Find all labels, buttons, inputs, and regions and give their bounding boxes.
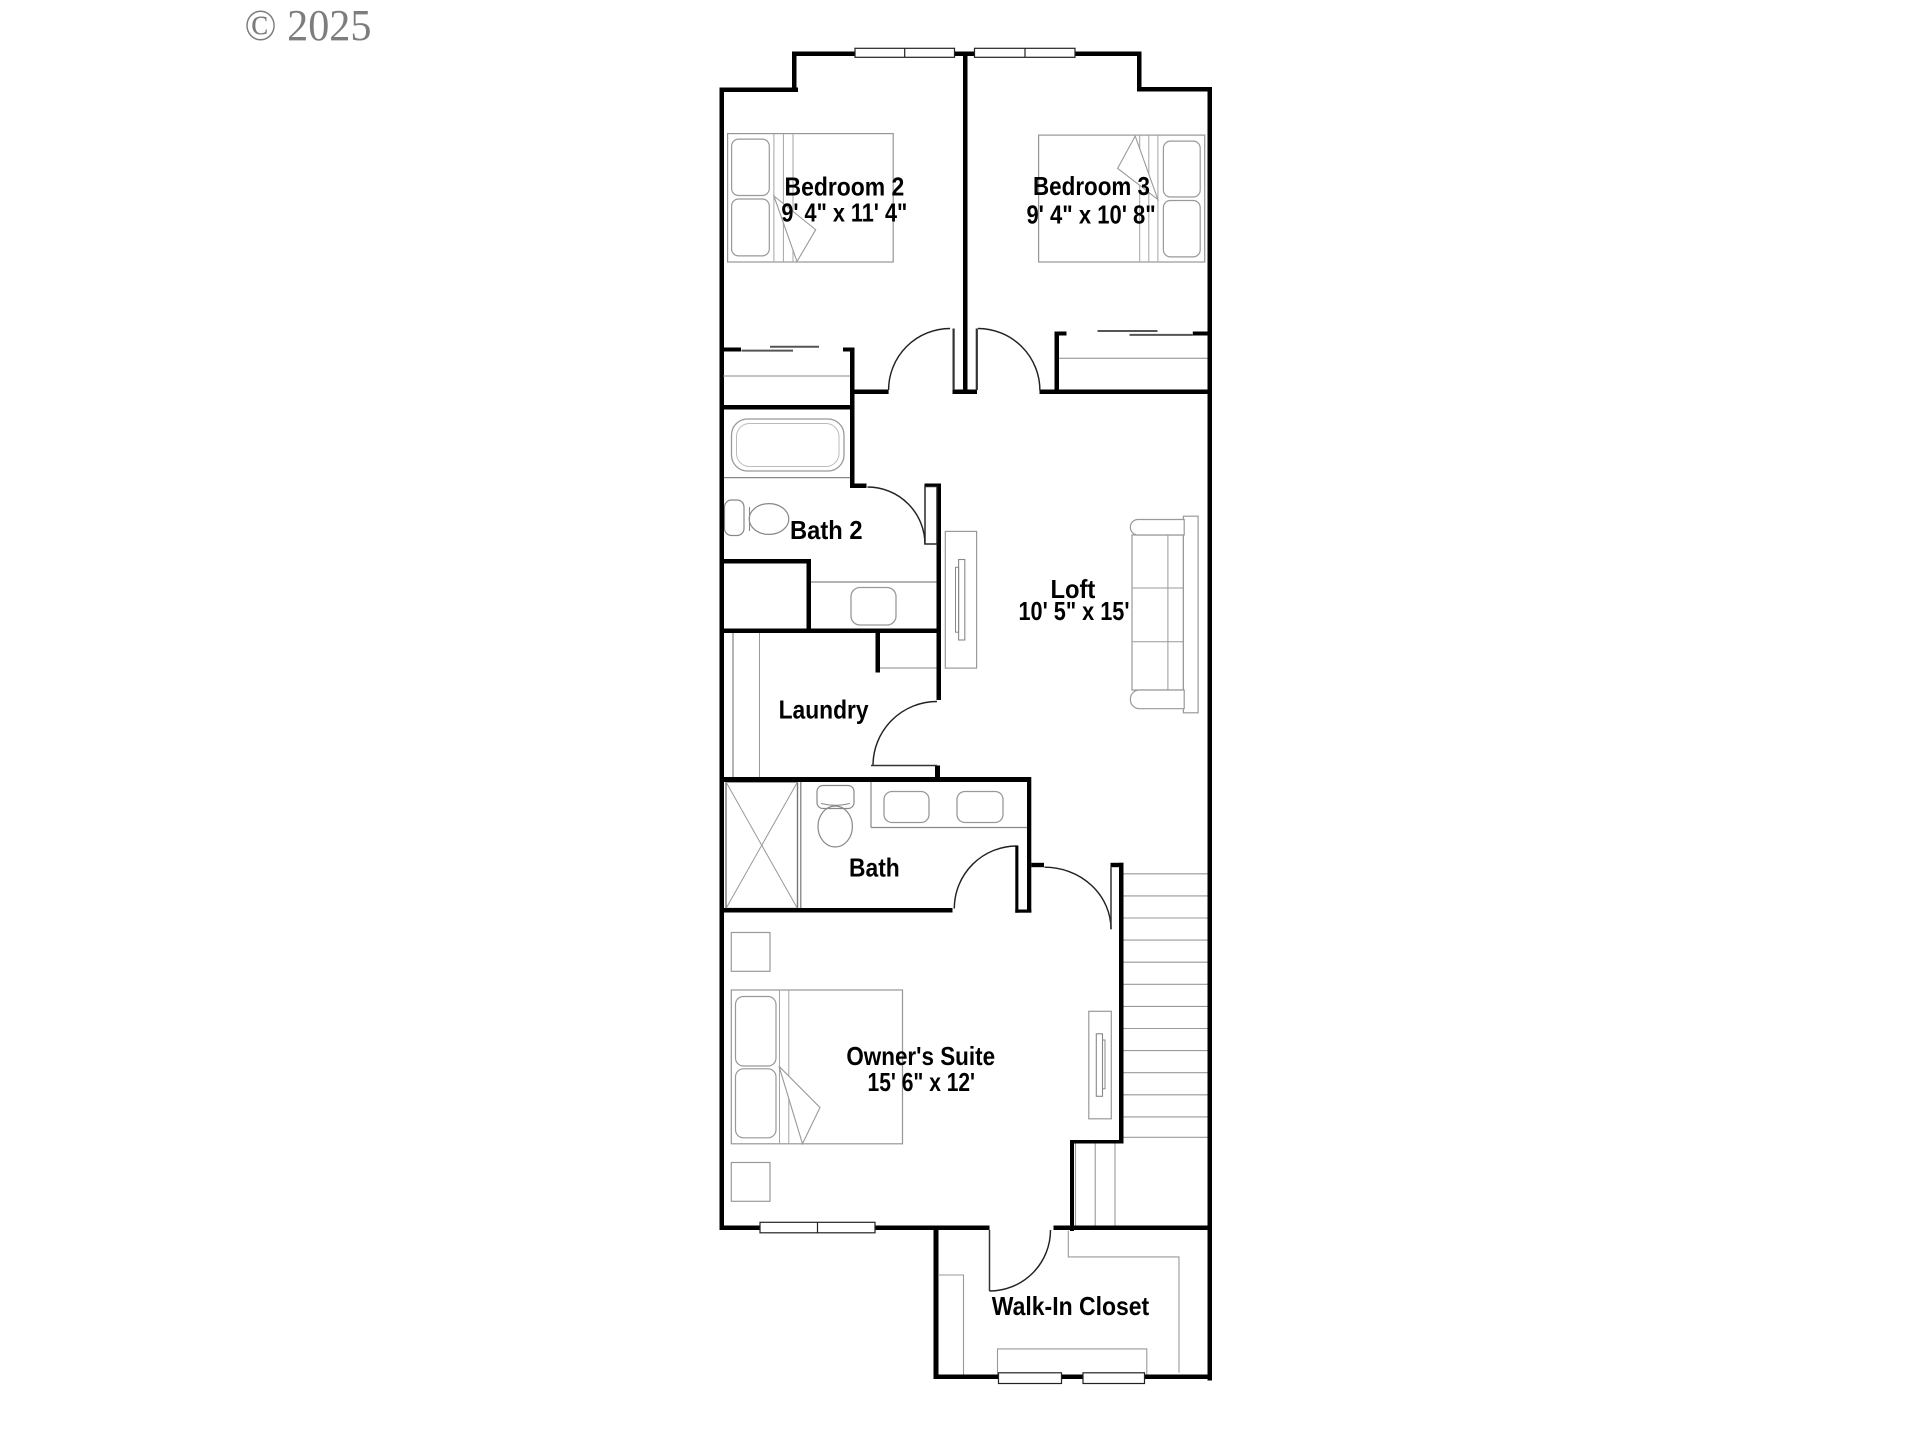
svg-text:Bedroom 3: Bedroom 3 bbox=[1033, 171, 1150, 201]
svg-text:Bath 2: Bath 2 bbox=[790, 515, 863, 545]
svg-text:Laundry: Laundry bbox=[779, 695, 869, 725]
svg-text:15' 6" x 12': 15' 6" x 12' bbox=[868, 1067, 976, 1097]
svg-text:© 2025: © 2025 bbox=[245, 1, 372, 50]
svg-text:Walk-In Closet: Walk-In Closet bbox=[992, 1291, 1150, 1321]
svg-text:10' 5" x 15': 10' 5" x 15' bbox=[1019, 596, 1130, 626]
svg-text:9' 4" x 10' 8": 9' 4" x 10' 8" bbox=[1026, 200, 1155, 230]
svg-text:Bath: Bath bbox=[849, 853, 900, 883]
svg-text:9' 4" x 11' 4": 9' 4" x 11' 4" bbox=[781, 198, 907, 228]
